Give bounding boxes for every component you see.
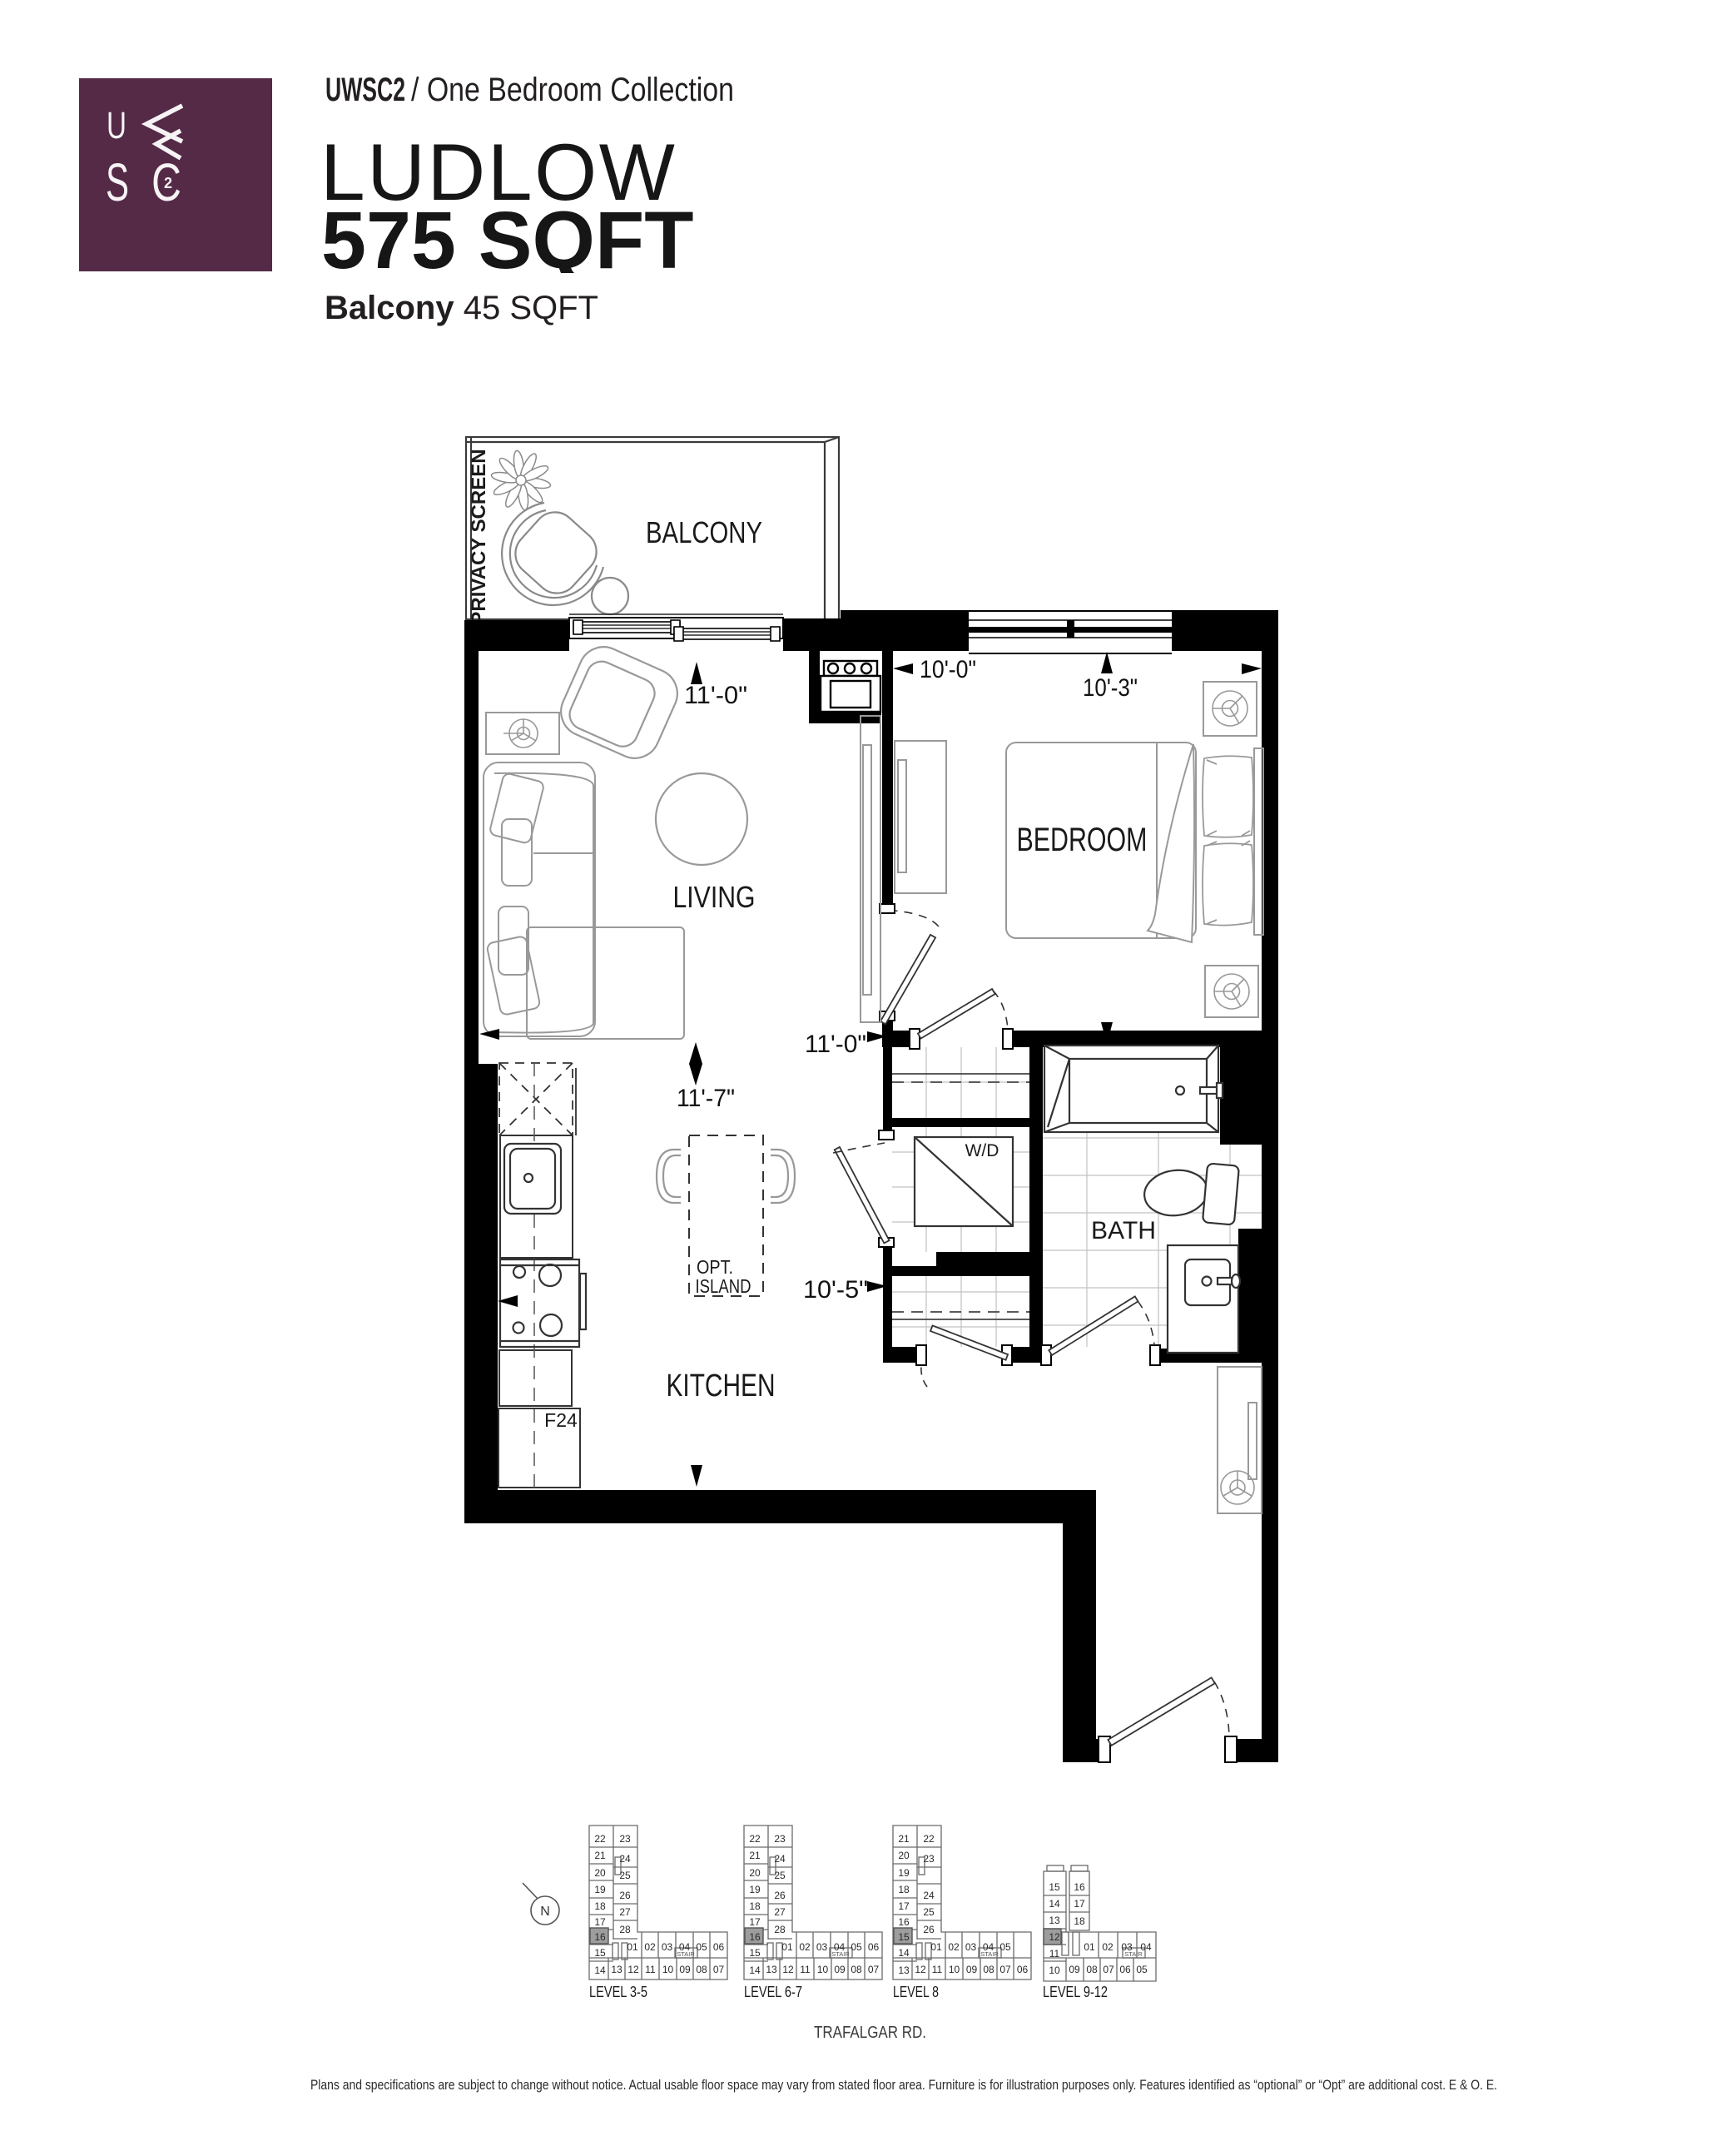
svg-text:U: U [107,104,126,147]
svg-text:STAIR: STAIR [831,1950,850,1958]
svg-text:25: 25 [774,1870,786,1881]
svg-text:15: 15 [898,1931,910,1943]
svg-text:11: 11 [645,1964,656,1975]
svg-text:08: 08 [1086,1964,1098,1975]
svg-text:24: 24 [619,1853,631,1865]
svg-text:12: 12 [782,1964,794,1975]
svg-text:06: 06 [1119,1964,1131,1975]
svg-text:18: 18 [1074,1915,1085,1927]
svg-text:21: 21 [594,1850,606,1861]
svg-text:17: 17 [898,1900,910,1912]
svg-text:18: 18 [898,1884,910,1895]
svg-text:24: 24 [774,1853,786,1865]
svg-text:20: 20 [749,1867,761,1879]
svg-text:20: 20 [898,1850,910,1861]
svg-text:07: 07 [868,1964,880,1975]
svg-text:575 SQFT: 575 SQFT [321,195,693,286]
svg-text:LEVEL 6-7: LEVEL 6-7 [744,1984,802,2000]
svg-text:BALCONY: BALCONY [646,515,762,549]
svg-text:14: 14 [1049,1898,1060,1910]
svg-text:12: 12 [915,1964,926,1975]
svg-text:06: 06 [713,1941,725,1953]
svg-text:01: 01 [1084,1941,1095,1953]
svg-text:LIVING: LIVING [673,880,756,914]
svg-text:21: 21 [749,1850,761,1861]
svg-text:09: 09 [1069,1964,1080,1975]
svg-text:18: 18 [594,1900,606,1912]
svg-text:02: 02 [1102,1941,1114,1953]
svg-text:03: 03 [662,1941,673,1953]
svg-text:W/D: W/D [965,1141,999,1160]
svg-text:BEDROOM: BEDROOM [1017,822,1148,858]
svg-text:06: 06 [1017,1964,1029,1975]
svg-text:27: 27 [774,1906,786,1918]
svg-text:01: 01 [781,1941,793,1953]
svg-text:05: 05 [1136,1964,1148,1975]
svg-text:23: 23 [774,1833,786,1845]
svg-text:23: 23 [923,1853,935,1865]
svg-text:25: 25 [923,1906,935,1918]
svg-text:18: 18 [749,1900,761,1912]
svg-text:S: S [106,152,129,212]
svg-text:25: 25 [619,1870,631,1881]
svg-text:ISLAND: ISLAND [696,1275,751,1297]
svg-text:10'-3": 10'-3" [1083,674,1138,702]
svg-text:05: 05 [851,1941,862,1953]
svg-text:UWSC2: UWSC2 [325,72,405,108]
svg-text:05: 05 [999,1941,1011,1953]
svg-text:15: 15 [1049,1881,1060,1893]
svg-text:17: 17 [1074,1898,1085,1910]
svg-text:05: 05 [696,1941,707,1953]
svg-text:03: 03 [965,1941,977,1953]
svg-text:07: 07 [1103,1964,1114,1975]
svg-text:28: 28 [774,1924,786,1935]
svg-text:10: 10 [949,1964,960,1975]
svg-text:08: 08 [983,1964,994,1975]
svg-text:10: 10 [662,1964,674,1975]
svg-text:27: 27 [619,1906,631,1918]
svg-text:10'-5": 10'-5" [803,1276,868,1304]
svg-text:15: 15 [594,1947,606,1959]
svg-text:26: 26 [774,1890,786,1901]
svg-text:14: 14 [749,1965,761,1976]
svg-text:15: 15 [749,1947,761,1959]
svg-text:13: 13 [1049,1915,1060,1926]
svg-text:14: 14 [594,1965,606,1976]
svg-text:12: 12 [627,1964,639,1975]
svg-text:STAIR: STAIR [980,1950,999,1958]
svg-text:STAIR: STAIR [1124,1950,1143,1958]
svg-text:02: 02 [644,1941,656,1953]
svg-text:01: 01 [930,1941,942,1953]
svg-text:LEVEL 9-12: LEVEL 9-12 [1043,1984,1108,2000]
svg-text:21: 21 [898,1833,910,1845]
svg-text:16: 16 [749,1931,761,1943]
svg-text:07: 07 [999,1964,1011,1975]
svg-text:11: 11 [800,1964,811,1975]
svg-text:10'-0": 10'-0" [920,656,976,683]
svg-text:22: 22 [749,1833,761,1845]
svg-text:08: 08 [851,1964,862,1975]
svg-text:28: 28 [619,1924,631,1935]
svg-text:08: 08 [696,1964,707,1975]
svg-text:16: 16 [594,1931,606,1943]
svg-text:Plans and specifications are s: Plans and specifications are subject to … [310,2078,1497,2093]
svg-text:KITCHEN: KITCHEN [667,1369,776,1403]
svg-text:09: 09 [966,1964,978,1975]
svg-text:26: 26 [619,1890,631,1901]
svg-text:STAIR: STAIR [677,1950,695,1958]
svg-text:20: 20 [594,1867,606,1879]
svg-text:11: 11 [932,1964,943,1975]
svg-text:10: 10 [817,1964,829,1975]
svg-text:19: 19 [898,1867,910,1879]
svg-text:N: N [540,1905,550,1919]
svg-text:10: 10 [1049,1965,1060,1976]
svg-text:19: 19 [749,1884,761,1895]
svg-text:12: 12 [1049,1931,1060,1943]
svg-text:13: 13 [611,1964,622,1975]
svg-text:19: 19 [594,1884,606,1895]
svg-text:PRIVACY SCREEN: PRIVACY SCREEN [468,449,490,624]
svg-text:TRAFALGAR RD.: TRAFALGAR RD. [814,2024,926,2042]
svg-text:BATH: BATH [1091,1217,1156,1244]
svg-text:2: 2 [164,175,172,191]
svg-text:LEVEL 3-5: LEVEL 3-5 [589,1984,647,2000]
svg-text:14: 14 [898,1947,910,1959]
svg-text:F24: F24 [544,1409,578,1431]
svg-text:11'-7": 11'-7" [677,1085,735,1112]
svg-text:11'-0": 11'-0" [805,1031,866,1058]
svg-text:03: 03 [816,1941,828,1953]
svg-text:23: 23 [619,1833,631,1845]
svg-text:22: 22 [923,1833,935,1845]
svg-text:07: 07 [713,1964,725,1975]
svg-text:13: 13 [898,1965,910,1976]
svg-text:06: 06 [868,1941,880,1953]
svg-text:24: 24 [923,1890,935,1901]
svg-text:26: 26 [923,1924,935,1935]
svg-text:13: 13 [766,1964,777,1975]
svg-text:02: 02 [799,1941,811,1953]
svg-text:01: 01 [627,1941,638,1953]
svg-text:17: 17 [594,1916,606,1928]
svg-text:11: 11 [1049,1948,1060,1960]
svg-text:Balcony 45 SQFT: Balcony 45 SQFT [325,290,598,326]
svg-text:11'-0": 11'-0" [684,682,747,709]
svg-text:16: 16 [898,1916,910,1928]
svg-text:22: 22 [594,1833,606,1845]
svg-text:17: 17 [749,1916,761,1928]
svg-text:09: 09 [834,1964,846,1975]
svg-text:16: 16 [1074,1881,1085,1893]
svg-text:LEVEL 8: LEVEL 8 [893,1984,939,2000]
svg-text:/ One Bedroom Collection: / One Bedroom Collection [411,72,734,108]
svg-text:09: 09 [679,1964,691,1975]
svg-text:02: 02 [948,1941,960,1953]
